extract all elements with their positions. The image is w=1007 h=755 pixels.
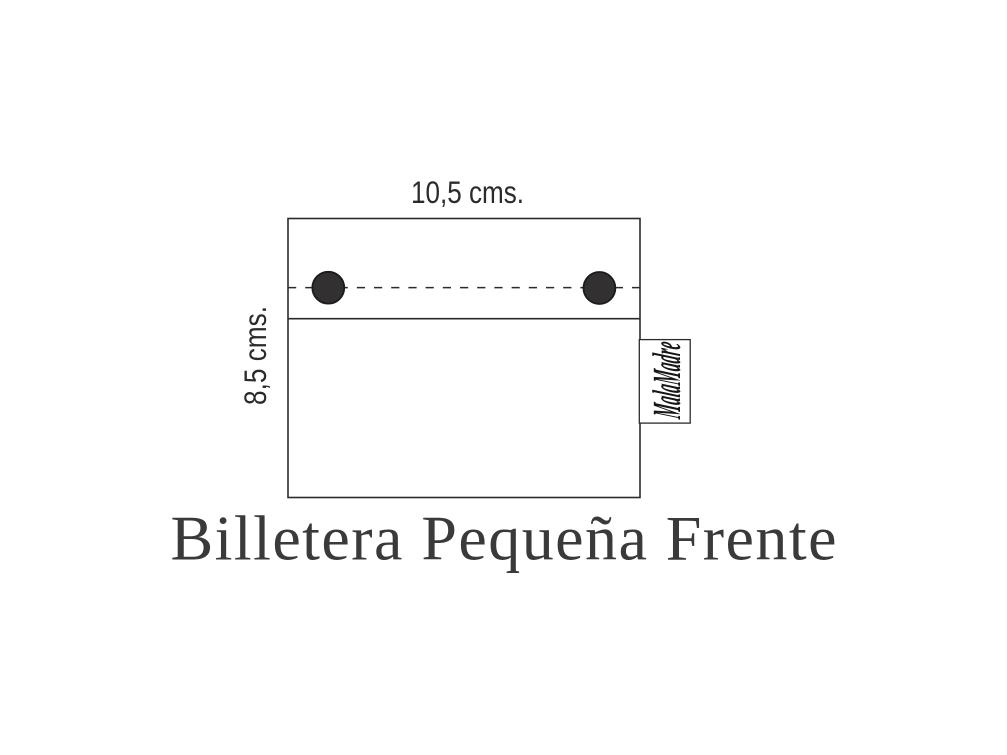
svg-text:MalaMadre: MalaMadre (644, 338, 689, 421)
svg-text:8,5 cms.: 8,5 cms. (237, 306, 273, 405)
svg-text:10,5 cms.: 10,5 cms. (411, 174, 524, 210)
svg-text:Billetera Pequeña Frente: Billetera Pequeña Frente (171, 503, 837, 574)
